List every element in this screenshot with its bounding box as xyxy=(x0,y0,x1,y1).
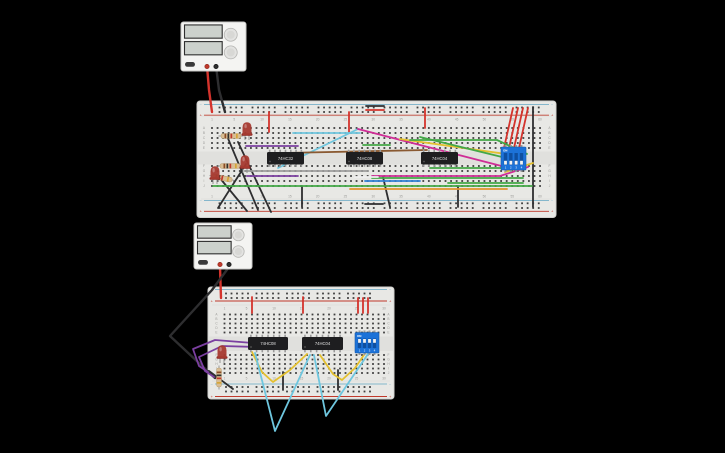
breadboard-hole xyxy=(295,127,297,129)
breadboard-hole xyxy=(362,107,364,109)
breadboard-hole xyxy=(367,127,369,129)
breadboard-hole xyxy=(261,137,263,139)
breadboard-hole xyxy=(323,372,325,374)
breadboard-hole xyxy=(311,165,313,167)
breadboard-hole xyxy=(297,386,299,388)
breadboard-hole xyxy=(303,391,305,393)
breadboard-hole xyxy=(311,142,313,144)
led-body xyxy=(218,345,227,358)
breadboard-hole xyxy=(256,386,258,388)
breadboard-hole xyxy=(383,147,385,149)
ic-pin xyxy=(285,164,287,167)
breadboard-hole xyxy=(456,132,458,134)
breadboard-hole xyxy=(372,327,374,329)
breadboard-hole xyxy=(466,207,468,209)
breadboard-hole xyxy=(274,107,276,109)
breadboard-hole xyxy=(312,327,314,329)
led-body xyxy=(241,155,250,168)
breadboard-hole xyxy=(311,147,313,149)
wire-psu2-positive-lead[interactable] xyxy=(220,267,221,298)
breadboard-hole xyxy=(217,142,219,144)
breadboard-hole xyxy=(539,175,541,177)
breadboard-hole xyxy=(296,202,298,204)
breadboard-hole xyxy=(272,137,274,139)
breadboard-hole xyxy=(455,107,457,109)
breadboard-hole xyxy=(356,137,358,139)
tiny-label: B xyxy=(548,131,550,135)
breadboard-hole xyxy=(242,386,244,388)
psu-negative-terminal[interactable] xyxy=(227,262,231,266)
breadboard-hole xyxy=(383,354,385,356)
breadboard-hole xyxy=(539,170,541,172)
breadboard-hole xyxy=(406,165,408,167)
breadboard-hole xyxy=(240,332,242,334)
breadboard-hole xyxy=(306,175,308,177)
breadboard-hole xyxy=(290,111,292,113)
breadboard-hole xyxy=(230,107,232,109)
breadboard-hole xyxy=(395,132,397,134)
breadboard-hole xyxy=(506,175,508,177)
breadboard-hole xyxy=(306,142,308,144)
breadboard-hole xyxy=(262,363,264,365)
breadboard-hole xyxy=(317,165,319,167)
dip-slider-4[interactable] xyxy=(373,339,376,343)
breadboard-hole xyxy=(516,207,518,209)
breadboard-hole xyxy=(472,180,474,182)
breadboard-hole xyxy=(439,180,441,182)
breadboard-hole xyxy=(467,127,469,129)
tiny-label: 1 xyxy=(211,118,213,122)
led-body xyxy=(243,122,252,135)
breadboard-hole xyxy=(472,207,474,209)
breadboard-hole xyxy=(495,170,497,172)
breadboard-hole xyxy=(367,359,369,361)
breadboard-hole xyxy=(434,180,436,182)
breadboard-hole xyxy=(367,363,369,365)
breadboard-hole xyxy=(290,359,292,361)
breadboard-hole xyxy=(372,368,374,370)
breadboard-hole xyxy=(484,142,486,144)
breadboard-hole xyxy=(242,391,244,393)
breadboard-hole xyxy=(228,147,230,149)
breadboard-hole xyxy=(395,127,397,129)
breadboard-hole xyxy=(317,391,319,393)
breadboard-hole xyxy=(244,147,246,149)
tiny-label: 20 xyxy=(316,195,320,199)
breadboard-hole xyxy=(445,180,447,182)
breadboard-hole xyxy=(317,180,319,182)
breadboard-hole xyxy=(333,391,335,393)
dip-slider-2[interactable] xyxy=(363,339,366,343)
breadboard-hole xyxy=(461,107,463,109)
breadboard-hole xyxy=(439,147,441,149)
tiny-label: B xyxy=(215,317,217,321)
breadboard-hole xyxy=(328,147,330,149)
breadboard-hole xyxy=(369,386,371,388)
psu-current-display xyxy=(198,241,232,253)
breadboard-hole xyxy=(483,207,485,209)
breadboard-hole xyxy=(317,137,319,139)
breadboard-hole xyxy=(356,359,358,361)
ic-pin xyxy=(439,150,441,153)
ic-pin xyxy=(348,150,350,153)
breadboard-hole xyxy=(383,137,385,139)
breadboard-hole xyxy=(428,170,430,172)
tiny-label: B xyxy=(387,317,389,321)
breadboard-hole xyxy=(350,318,352,320)
breadboard-hole xyxy=(450,170,452,172)
breadboard-hole xyxy=(372,359,374,361)
breadboard-hole xyxy=(225,391,227,393)
breadboard-hole xyxy=(217,132,219,134)
ic-pin xyxy=(374,150,376,153)
dip-slider-2[interactable] xyxy=(509,161,512,165)
breadboard-hole xyxy=(311,137,313,139)
breadboard-hole xyxy=(361,142,363,144)
ic-74hc04-b[interactable]: 74HC04 xyxy=(302,335,343,353)
tiny-label: 15 xyxy=(288,195,292,199)
breadboard-hole xyxy=(308,391,310,393)
ic-pin1-dot xyxy=(269,161,271,163)
breadboard-hole xyxy=(369,391,371,393)
breadboard-hole xyxy=(317,359,319,361)
breadboard-hole xyxy=(211,147,213,149)
breadboard-hole xyxy=(229,359,231,361)
breadboard-hole xyxy=(484,165,486,167)
breadboard-hole xyxy=(456,170,458,172)
breadboard-hole xyxy=(495,180,497,182)
breadboard-hole xyxy=(461,170,463,172)
breadboard-hole xyxy=(328,327,330,329)
ic-pin xyxy=(261,350,263,353)
breadboard-hole xyxy=(279,332,281,334)
breadboard-hole xyxy=(322,391,324,393)
resistor-band xyxy=(227,164,229,169)
breadboard-hole xyxy=(489,170,491,172)
breadboard-hole xyxy=(456,180,458,182)
breadboard-hole xyxy=(261,127,263,129)
breadboard-hole xyxy=(350,127,352,129)
breadboard-hole xyxy=(279,327,281,329)
breadboard-hole xyxy=(522,142,524,144)
breadboard-hole xyxy=(273,332,275,334)
psu-negative-terminal[interactable] xyxy=(214,64,218,68)
breadboard-hole xyxy=(333,142,335,144)
breadboard-hole xyxy=(339,391,341,393)
breadboard-hole xyxy=(339,175,341,177)
psu-positive-terminal[interactable] xyxy=(205,64,209,68)
breadboard-hole xyxy=(323,323,325,325)
ic-74hc08-b[interactable]: 74HC08 xyxy=(248,335,288,353)
breadboard-hole xyxy=(284,354,286,356)
led-highlight xyxy=(244,124,246,128)
breadboard-hole xyxy=(217,127,219,129)
breadboard-hole xyxy=(339,297,341,299)
breadboard-hole xyxy=(273,327,275,329)
breadboard-hole xyxy=(539,142,541,144)
ic-pin xyxy=(273,335,275,338)
breadboard-hole xyxy=(340,202,342,204)
breadboard-hole xyxy=(334,368,336,370)
breadboard-hole xyxy=(229,327,231,329)
breadboard-hole xyxy=(272,127,274,129)
breadboard-hole xyxy=(445,132,447,134)
breadboard-hole xyxy=(235,107,237,109)
breadboard-hole xyxy=(516,202,518,204)
breadboard-hole xyxy=(323,107,325,109)
breadboard-hole xyxy=(439,132,441,134)
circuit-canvas[interactable]: −−++−−++11551010151520202525303035354040… xyxy=(0,0,725,453)
breadboard-hole xyxy=(417,132,419,134)
breadboard-hole xyxy=(450,127,452,129)
breadboard-hole xyxy=(289,142,291,144)
breadboard-hole xyxy=(317,327,319,329)
ic-74hc32[interactable]: 74HC32 xyxy=(267,150,304,167)
breadboard-hole xyxy=(239,180,241,182)
resistor-1[interactable] xyxy=(219,134,244,139)
breadboard-hole xyxy=(333,165,335,167)
ic-pin xyxy=(310,335,312,338)
breadboard-hole xyxy=(450,147,452,149)
ic-pin xyxy=(348,164,350,167)
breadboard-hole xyxy=(329,202,331,204)
breadboard-hole xyxy=(406,207,408,209)
breadboard-hole xyxy=(312,318,314,320)
breadboard-hole xyxy=(539,132,541,134)
breadboard-hole xyxy=(297,391,299,393)
breadboard-hole xyxy=(261,132,263,134)
tiny-label: 25 xyxy=(355,377,359,381)
breadboard-hole xyxy=(422,127,424,129)
breadboard-hole xyxy=(318,111,320,113)
breadboard-hole xyxy=(373,207,375,209)
breadboard-hole xyxy=(292,386,294,388)
breadboard-hole xyxy=(317,297,319,299)
resistor-2[interactable] xyxy=(218,164,243,169)
breadboard-hole xyxy=(347,293,349,295)
breadboard-hole xyxy=(236,391,238,393)
breadboard-hole xyxy=(267,391,269,393)
psu-power-button[interactable] xyxy=(198,260,208,265)
breadboard-hole xyxy=(283,127,285,129)
breadboard-hole xyxy=(225,293,227,295)
breadboard-hole xyxy=(362,202,364,204)
breadboard-hole xyxy=(306,137,308,139)
breadboard-hole xyxy=(261,147,263,149)
breadboard-hole xyxy=(290,363,292,365)
breadboard-hole xyxy=(233,175,235,177)
breadboard-hole xyxy=(236,386,238,388)
breadboard-hole xyxy=(279,354,281,356)
breadboard-hole xyxy=(499,111,501,113)
ic-pin xyxy=(274,164,276,167)
breadboard-hole xyxy=(311,180,313,182)
breadboard-hole xyxy=(272,386,274,388)
dip-slider-1[interactable] xyxy=(358,339,361,343)
breadboard-hole xyxy=(400,165,402,167)
breadboard-hole xyxy=(229,368,231,370)
resistor-4[interactable] xyxy=(217,366,222,390)
breadboard-hole xyxy=(217,137,219,139)
breadboard-hole xyxy=(222,147,224,149)
ic-pin xyxy=(433,164,435,167)
power-supply-2[interactable] xyxy=(194,223,252,269)
breadboard-hole xyxy=(367,372,369,374)
psu-power-button[interactable] xyxy=(185,62,195,67)
breadboard-hole xyxy=(345,332,347,334)
ic-pin xyxy=(353,164,355,167)
breadboard-hole xyxy=(274,111,276,113)
breadboard-hole xyxy=(322,142,324,144)
resistor-band xyxy=(235,164,237,169)
breadboard-hole xyxy=(301,318,303,320)
ic-74hc04[interactable]: 74HC04 xyxy=(421,150,458,167)
tiny-label: 40 xyxy=(427,195,431,199)
ic-pin xyxy=(328,350,330,353)
breadboard-hole xyxy=(290,372,292,374)
ic-pin xyxy=(261,335,263,338)
tiny-label: 25 xyxy=(344,195,348,199)
breadboard-hole xyxy=(538,107,540,109)
breadboard-hole xyxy=(372,137,374,139)
ic-pin xyxy=(290,164,292,167)
dip-switch-1[interactable]: ON1234 xyxy=(501,145,526,172)
breadboard-hole xyxy=(406,111,408,113)
ic-pin xyxy=(295,150,297,153)
breadboard-hole xyxy=(235,111,237,113)
breadboard-hole xyxy=(244,142,246,144)
breadboard-hole xyxy=(229,363,231,365)
breadboard-hole xyxy=(272,180,274,182)
breadboard-hole xyxy=(231,297,233,299)
breadboard-hole xyxy=(417,137,419,139)
ic-pin xyxy=(304,350,306,353)
breadboard-hole xyxy=(372,323,374,325)
breadboard-hole xyxy=(389,147,391,149)
breadboard-hole xyxy=(434,137,436,139)
breadboard-hole xyxy=(361,327,363,329)
breadboard-hole xyxy=(278,132,280,134)
dip-slider-3[interactable] xyxy=(368,339,371,343)
breadboard-hole xyxy=(400,170,402,172)
breadboard-hole xyxy=(400,142,402,144)
ic-pin xyxy=(273,350,275,353)
tiny-label: F xyxy=(388,353,390,357)
dip-slider-1[interactable] xyxy=(504,161,507,165)
ic-74hc08[interactable]: 74HC08 xyxy=(346,150,383,167)
tiny-label: E xyxy=(203,146,205,150)
breadboard-hole xyxy=(351,207,353,209)
breadboard-hole xyxy=(395,107,397,109)
breadboard-hole xyxy=(289,132,291,134)
breadboard-hole xyxy=(273,363,275,365)
breadboard-hole xyxy=(285,202,287,204)
breadboard-hole xyxy=(499,207,501,209)
breadboard-hole xyxy=(306,332,308,334)
ic-pin xyxy=(269,150,271,153)
tiny-label: F xyxy=(549,164,551,168)
breadboard-hole xyxy=(273,372,275,374)
breadboard-hole xyxy=(256,165,258,167)
breadboard-hole xyxy=(273,318,275,320)
breadboard-hole xyxy=(301,368,303,370)
breadboard-hole xyxy=(283,132,285,134)
breadboard-hole xyxy=(322,137,324,139)
breadboard-hole xyxy=(229,314,231,316)
breadboard-hole xyxy=(211,165,213,167)
ic-pin xyxy=(284,350,286,353)
breadboard-hole xyxy=(422,111,424,113)
breadboard-hole xyxy=(499,202,501,204)
breadboard-hole xyxy=(328,363,330,365)
breadboard-hole xyxy=(240,318,242,320)
breadboard-hole xyxy=(372,372,374,374)
breadboard-hole xyxy=(500,127,502,129)
breadboard-hole xyxy=(489,147,491,149)
breadboard-hole xyxy=(211,142,213,144)
breadboard-hole xyxy=(301,327,303,329)
breadboard-hole xyxy=(345,165,347,167)
breadboard-hole xyxy=(295,147,297,149)
breadboard-hole xyxy=(224,327,226,329)
breadboard-hole xyxy=(406,127,408,129)
breadboard-hole xyxy=(261,297,263,299)
dip-switch-2[interactable]: ON1234 xyxy=(355,331,379,356)
breadboard-hole xyxy=(306,127,308,129)
breadboard-hole xyxy=(241,207,243,209)
breadboard-hole xyxy=(356,111,358,113)
breadboard-hole xyxy=(241,111,243,113)
breadboard-hole xyxy=(224,202,226,204)
breadboard-hole xyxy=(489,137,491,139)
breadboard-hole xyxy=(378,314,380,316)
breadboard-hole xyxy=(439,137,441,139)
breadboard-hole xyxy=(240,323,242,325)
dip-slider-4[interactable] xyxy=(520,161,523,165)
breadboard-hole xyxy=(356,207,358,209)
breadboard-hole xyxy=(317,293,319,295)
ic-pin xyxy=(310,350,312,353)
breadboard-hole xyxy=(539,180,541,182)
breadboard-hole xyxy=(301,332,303,334)
breadboard-hole xyxy=(351,107,353,109)
dip-slider-3[interactable] xyxy=(515,161,518,165)
breadboard-hole xyxy=(339,354,341,356)
breadboard-hole xyxy=(500,180,502,182)
breadboard-hole xyxy=(455,111,457,113)
breadboard-hole xyxy=(231,391,233,393)
breadboard-hole xyxy=(334,359,336,361)
tiny-label: I xyxy=(204,179,205,183)
breadboard-hole xyxy=(372,170,374,172)
breadboard-hole xyxy=(229,332,231,334)
breadboard-hole xyxy=(461,132,463,134)
breadboard-hole xyxy=(369,293,371,295)
breadboard-hole xyxy=(250,147,252,149)
breadboard-hole xyxy=(345,142,347,144)
power-supply-1[interactable] xyxy=(181,22,246,71)
breadboard-hole xyxy=(488,111,490,113)
breadboard-hole xyxy=(252,107,254,109)
ic-pin xyxy=(301,164,303,167)
psu-positive-terminal[interactable] xyxy=(218,262,222,266)
breadboard-hole xyxy=(323,202,325,204)
breadboard-hole xyxy=(339,368,341,370)
breadboard-hole xyxy=(311,175,313,177)
breadboard-hole xyxy=(417,165,419,167)
breadboard-hole xyxy=(350,314,352,316)
breadboard-hole xyxy=(538,111,540,113)
